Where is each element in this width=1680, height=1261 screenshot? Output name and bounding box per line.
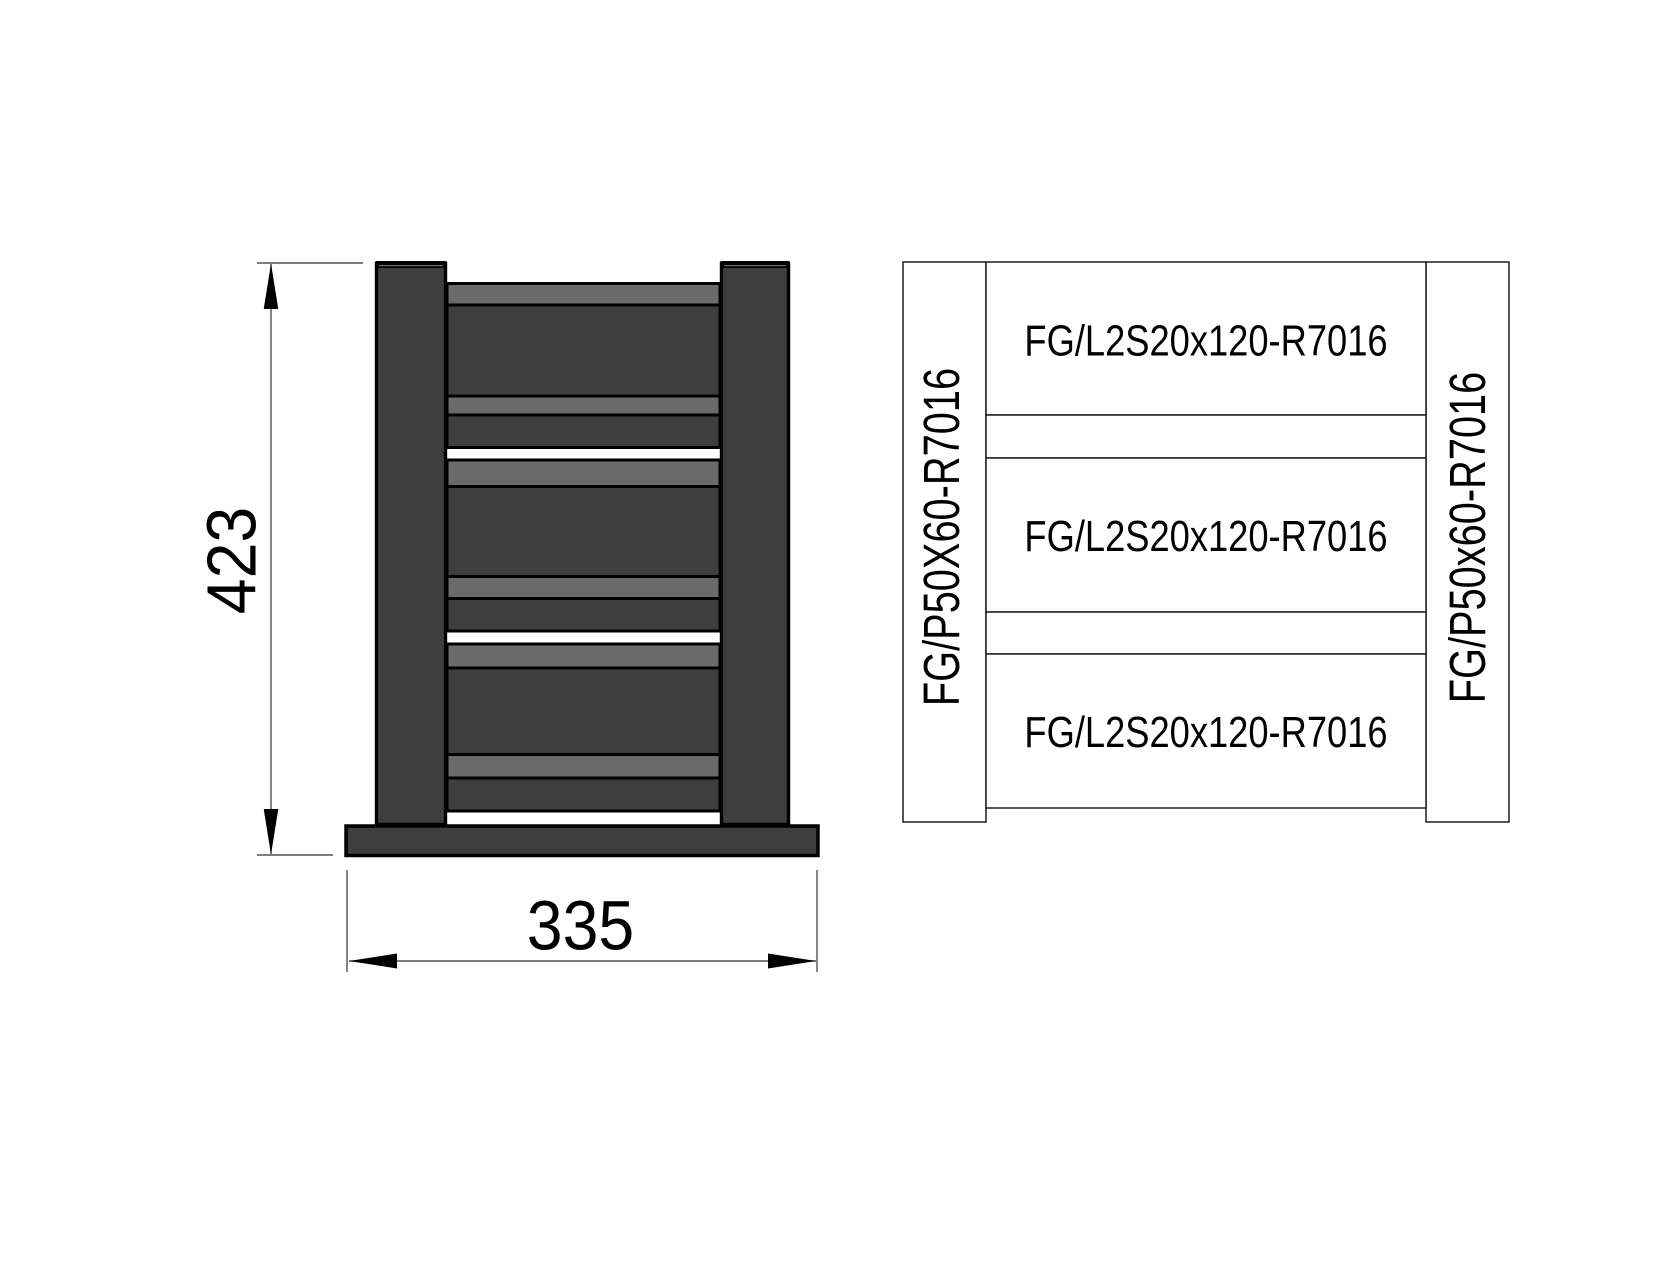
svg-text:FG/L2S20x120-R7016: FG/L2S20x120-R7016	[1024, 510, 1387, 560]
svg-text:FG/L2S20x120-R7016: FG/L2S20x120-R7016	[1024, 315, 1387, 365]
svg-text:FG/P50x60-R7016: FG/P50x60-R7016	[1439, 372, 1496, 704]
svg-text:335: 335	[527, 887, 634, 965]
svg-text:423: 423	[193, 507, 271, 614]
svg-text:FG/L2S20x120-R7016: FG/L2S20x120-R7016	[1024, 706, 1387, 756]
svg-text:FG/P50X60-R7016: FG/P50X60-R7016	[913, 368, 970, 706]
